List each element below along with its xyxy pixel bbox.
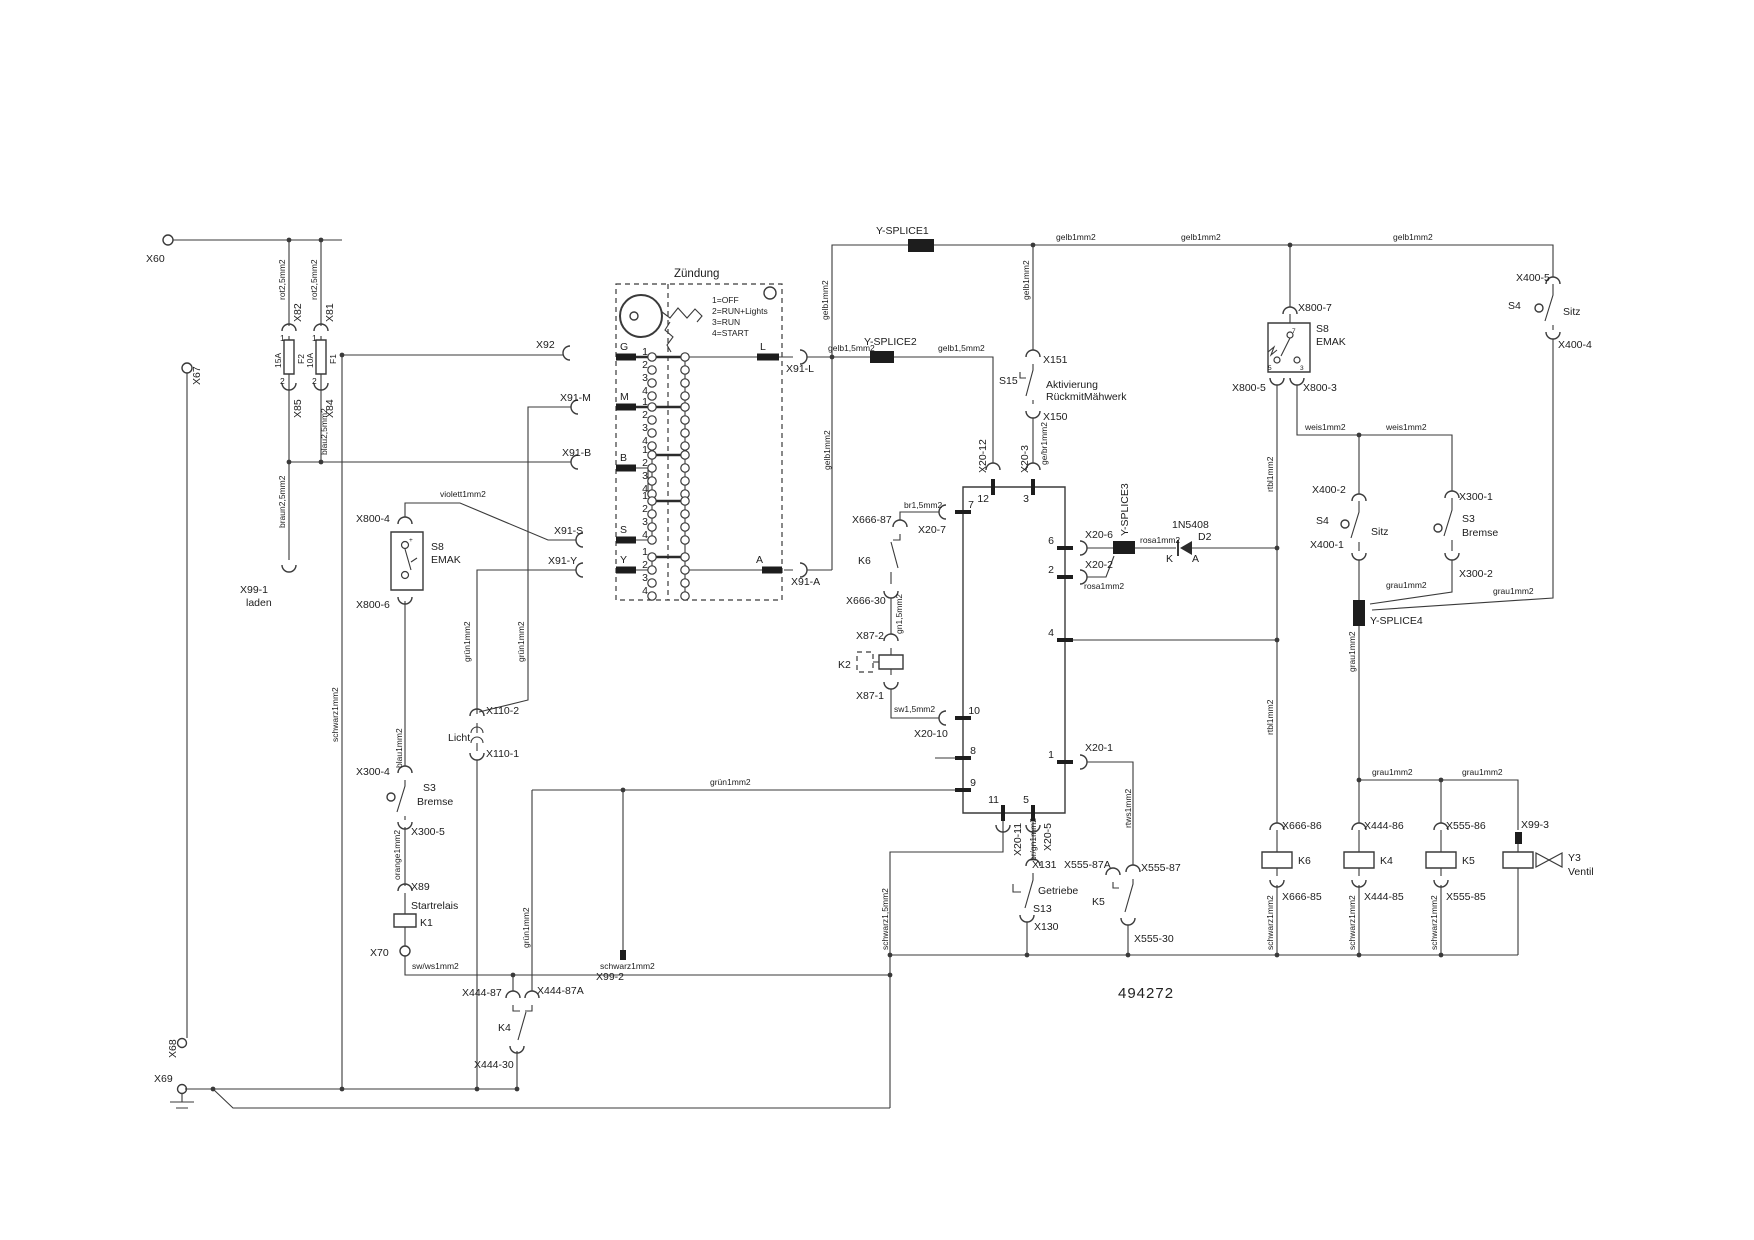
terminal-s (616, 537, 636, 544)
x150-arc (1026, 411, 1040, 418)
label-x130: X130 (1034, 921, 1059, 933)
key-linkage (665, 322, 673, 352)
label-term-l: L (760, 341, 766, 353)
label-zuendung: Zündung (674, 268, 719, 280)
svg-text:2: 2 (642, 409, 648, 421)
label-x444-87a: X444-87A (537, 985, 584, 997)
label-x555-87a: X555-87A (1064, 859, 1111, 871)
x20-10-arc (939, 711, 946, 725)
label-x800-7: X800-7 (1298, 302, 1332, 314)
label-x110-1: X110-1 (486, 748, 519, 760)
label-x87-2: X87-2 (856, 630, 884, 642)
wire-label-weis-a: weis1mm2 (1304, 422, 1346, 432)
label-x60: X60 (146, 253, 165, 265)
label-emak-right: EMAK (1316, 336, 1346, 348)
label-x555-87: X555-87 (1141, 862, 1181, 874)
x300-1-arc (1445, 491, 1459, 498)
label-x91-a: X91-A (791, 576, 820, 588)
svg-text:3: 3 (642, 470, 648, 482)
wire-label-rot25-a: rot2,5mm2 (277, 259, 287, 300)
valve-y3 (1503, 852, 1562, 868)
wire-label-rtbl-b: rtbl1mm2 (1265, 699, 1275, 735)
label-x87-1: X87-1 (856, 690, 884, 702)
x110-1-arc (470, 753, 484, 760)
svg-text:11: 11 (988, 794, 999, 806)
svg-text:1: 1 (642, 490, 648, 502)
terminal-m (616, 404, 636, 411)
wire-k5-contact (1113, 879, 1133, 955)
x20-1-arc (1080, 755, 1087, 769)
svg-text:2: 2 (642, 457, 648, 469)
svg-text:12: 12 (977, 493, 989, 505)
x87-2-arc (884, 634, 898, 641)
svg-text:3: 3 (642, 422, 648, 434)
wires (173, 240, 1553, 1108)
switch-s15-bracket (1020, 372, 1026, 378)
wire-label-gelb-v2: gelb1mm2 (822, 430, 832, 470)
label-pin7-emak: 7 (1292, 328, 1296, 335)
label-x666-86: X666-86 (1282, 820, 1322, 832)
wire-weis-bus (1297, 385, 1452, 491)
svg-text:4: 4 (642, 585, 648, 597)
wire-label-gelb-bus1: gelb1mm2 (1056, 232, 1096, 242)
label-term-s: S (620, 524, 627, 536)
junction-dots (211, 238, 1444, 1092)
label-x555-86: X555-86 (1446, 820, 1486, 832)
ignition-switch (616, 284, 782, 600)
terminal-b (616, 465, 636, 472)
label-term-g: G (620, 341, 628, 353)
x99-1-arc (282, 565, 296, 572)
svg-text:1: 1 (642, 396, 648, 408)
label-k4: K4 (1380, 855, 1393, 867)
x151-arc (1026, 350, 1040, 357)
label-x89: X89 (411, 881, 430, 893)
label-x666-87: X666-87 (852, 514, 892, 526)
wire-s4-mid (1351, 435, 1359, 600)
label-x85: X85 (292, 399, 304, 418)
label-s15: S15 (999, 375, 1018, 387)
svg-text:1: 1 (642, 444, 648, 456)
label-f2-rating: 15A (273, 353, 283, 368)
wire-label-grau-d: grau1mm2 (1462, 767, 1503, 777)
label-diode-k: K (1166, 553, 1173, 565)
terminal-x60 (163, 235, 173, 245)
svg-text:2: 2 (1048, 564, 1054, 576)
label-x91-s: X91-S (554, 525, 583, 537)
x400-4-arc (1546, 332, 1560, 339)
terminal-x99-3-end (1515, 832, 1522, 844)
label-x800-4: X800-4 (356, 513, 390, 525)
label-x82: X82 (292, 303, 304, 322)
label-f1-rating: 10A (305, 353, 315, 368)
svg-text:4: 4 (642, 529, 648, 541)
label-x666-85: X666-85 (1282, 891, 1322, 903)
label-f1: F1 (328, 354, 338, 364)
label-f2-pin2: 2 (280, 376, 285, 386)
wire-label-gruen-c: grün1mm2 (521, 907, 531, 948)
label-x400-5: X400-5 (1516, 272, 1550, 284)
label-x20-11: X20-11 (1012, 823, 1024, 856)
wire-label-violett: violett1mm2 (440, 489, 486, 499)
label-x800-6: X800-6 (356, 599, 390, 611)
label-x20-6: X20-6 (1085, 529, 1113, 541)
y-splice3 (1113, 541, 1135, 554)
label-x300-5: X300-5 (411, 826, 445, 838)
label-key-pos2: 2=RUN+Lights (712, 306, 768, 316)
x800-7-arc (1283, 307, 1297, 314)
label-s3-mid: S3 (1462, 513, 1475, 525)
switch-s3-left-actuator (387, 793, 395, 801)
x555-87-arc (1126, 865, 1140, 872)
svg-text:2: 2 (642, 503, 648, 515)
x666-87-arc (893, 520, 907, 527)
label-licht: Licht (448, 732, 470, 744)
x400-1-arc (1352, 553, 1366, 560)
wire-label-gruen-b: grün1mm2 (516, 621, 526, 662)
label-x555-30: X555-30 (1134, 933, 1174, 945)
wire-label-gelb-v3: gelb1mm2 (1021, 260, 1031, 300)
wire-label-gelb15-b: gelb1,5mm2 (938, 343, 985, 353)
terminal-y (616, 567, 636, 574)
wire-label-orange: orange1mm2 (392, 830, 402, 880)
label-x151: X151 (1043, 354, 1068, 366)
wire-label-schwarz-k5: schwarz1mm2 (1429, 895, 1439, 950)
wire-label-gruen-a: grün1mm2 (462, 621, 472, 662)
wire-pin11-ground (890, 821, 1003, 1108)
label-k5: K5 (1462, 855, 1475, 867)
label-k6-contact: K6 (858, 555, 871, 567)
label-s8-right: S8 (1316, 323, 1329, 335)
label-k6: K6 (1298, 855, 1311, 867)
svg-text:3: 3 (1023, 493, 1029, 505)
relay-k1-coil (394, 914, 416, 927)
relay-k6-coil (1262, 852, 1292, 868)
wire-label-brgn: br/gn1mm2 (1028, 818, 1038, 861)
wire-label-gruen-bus: grün1mm2 (710, 777, 751, 787)
wire-label-blau1: blau1mm2 (394, 728, 404, 768)
label-x20-3: X20-3 (1019, 445, 1031, 473)
label-f1-pin2: 2 (312, 376, 317, 386)
x87-1-arc (884, 682, 898, 689)
wire-label-schwarz-k6: schwarz1mm2 (1265, 895, 1275, 950)
label-term-y: Y (620, 554, 627, 566)
label-s3-left: S3 (423, 782, 436, 794)
label-f2-pin1: 1 (280, 333, 285, 343)
svg-text:1: 1 (642, 346, 648, 358)
label-startrelais: Startrelais (411, 900, 458, 912)
relay-k2 (857, 652, 903, 672)
label-key-pos3: 3=RUN (712, 317, 740, 327)
svg-text:2: 2 (642, 359, 648, 371)
label-k5-contact: K5 (1092, 896, 1105, 908)
wire-label-schwarz15: schwarz1,5mm2 (880, 888, 890, 950)
label-key-pos4: 4=START (712, 328, 749, 338)
wire-label-braun25: braun2,5mm2 (277, 475, 287, 528)
terminal-a (762, 567, 782, 574)
label-rueckmit: RückmitMähwerk (1046, 391, 1127, 403)
svg-text:1: 1 (642, 546, 648, 558)
key-hole (630, 312, 638, 320)
label-y-splice3: Y-SPLICE3 (1119, 483, 1131, 536)
x444-87-arc (506, 991, 520, 998)
relay-k5-coil (1426, 852, 1456, 868)
label-sitz-top: Sitz (1563, 306, 1581, 318)
wire-label-schwarz-k4: schwarz1mm2 (1347, 895, 1357, 950)
svg-text:4: 4 (1048, 627, 1054, 639)
wire-label-gebr: ge/br1mm2 (1039, 422, 1049, 465)
label-x70: X70 (370, 947, 389, 959)
connector-arcs (282, 277, 1560, 1053)
label-x131: X131 (1032, 859, 1057, 871)
switch-s3-mid-actuator (1434, 524, 1442, 532)
wire-label-grau-v: grau1mm2 (1347, 631, 1357, 672)
document-number: 494272 (1118, 985, 1174, 1002)
svg-text:3: 3 (642, 372, 648, 384)
label-emak-left: EMAK (431, 554, 461, 566)
screw-icon (764, 287, 776, 299)
label-x20-10: X20-10 (914, 728, 948, 740)
switch-s8-emak-right (1268, 323, 1310, 372)
svg-text:1: 1 (1048, 749, 1054, 761)
switch-s8-emak-left (391, 532, 423, 590)
y-splice4 (1353, 600, 1365, 626)
svg-text:8: 8 (970, 745, 976, 757)
x130-arc (1020, 915, 1034, 922)
label-plus: + (409, 537, 413, 544)
wire-ground-bus (185, 1089, 890, 1108)
wire-label-blau25: blau2,5mm2 (319, 408, 329, 455)
x555-30-arc (1121, 918, 1135, 925)
svg-text:2: 2 (642, 559, 648, 571)
label-x20-5: X20-5 (1042, 823, 1054, 851)
ignition-contact-numbers: 1234 1234 1234 1234 1234 (642, 346, 648, 597)
wire-label-br15: br1,5mm2 (904, 500, 943, 510)
label-x20-7: X20-7 (918, 524, 946, 536)
label-y-splice1: Y-SPLICE1 (876, 225, 929, 237)
label-x444-85: X444-85 (1364, 891, 1404, 903)
wire-label-gelb-bus2: gelb1mm2 (1181, 232, 1221, 242)
label-x400-4: X400-4 (1558, 339, 1592, 351)
label-x300-1: X300-1 (1459, 491, 1493, 503)
label-x555-85: X555-85 (1446, 891, 1486, 903)
wiring-diagram-page: X60 X67 X68 X69 X70 rot2,5mm2 rot2,5mm2 … (0, 0, 1754, 1240)
wire-bremse-start-column (397, 780, 890, 975)
x800-4-arc (398, 517, 412, 524)
terminal-x99-2-end (620, 950, 626, 960)
relay-k4-coil (1344, 852, 1374, 868)
label-y-splice4: Y-SPLICE4 (1370, 615, 1423, 627)
wire-label-rtws: rtws1mm2 (1123, 789, 1133, 828)
wire-label-gelb-bus3: gelb1mm2 (1393, 232, 1433, 242)
label-x300-2: X300-2 (1459, 568, 1493, 580)
svg-text:3: 3 (642, 516, 648, 528)
x800-3-arc (1290, 378, 1304, 385)
label-x92: X92 (536, 339, 555, 351)
label-x91-m: X91-M (560, 392, 591, 404)
label-k1: K1 (420, 917, 433, 929)
label-x444-87: X444-87 (462, 987, 502, 999)
x91l-arc (800, 350, 807, 364)
switch-s4-top-actuator (1535, 304, 1543, 312)
wire-label-grau-c: grau1mm2 (1372, 767, 1413, 777)
svg-text:5: 5 (1023, 794, 1029, 806)
label-x800-3: X800-3 (1303, 382, 1337, 394)
terminal-l (757, 354, 779, 361)
wiring-diagram: X60 X67 X68 X69 X70 rot2,5mm2 rot2,5mm2 … (0, 0, 1754, 1240)
label-x67: X67 (191, 366, 203, 385)
label-aktivierung: Aktivierung (1046, 379, 1098, 391)
wire-label-gelb-v1: gelb1mm2 (820, 280, 830, 320)
svg-text:3: 3 (642, 572, 648, 584)
labels: X60 X67 X68 X69 X70 rot2,5mm2 rot2,5mm2 … (146, 225, 1594, 1085)
label-term-b: B (620, 452, 627, 464)
svg-text:9: 9 (970, 777, 976, 789)
wire-x400-4-column (1372, 284, 1553, 610)
label-x91-b: X91-B (562, 447, 591, 459)
wire-label-weis-b: weis1mm2 (1385, 422, 1427, 432)
key-icon (620, 295, 662, 337)
wire-grau-bus (1359, 626, 1518, 830)
label-f1-pin1: 1 (312, 333, 317, 343)
x20-6-arc (1080, 541, 1087, 555)
wire-x91y-licht (477, 570, 576, 714)
terminal-g (616, 354, 636, 361)
x400-2-arc (1352, 494, 1366, 501)
label-x400-2: X400-2 (1312, 484, 1346, 496)
x800-5-arc (1270, 378, 1284, 385)
y-splice1 (908, 239, 934, 252)
label-x300-4: X300-4 (356, 766, 390, 778)
label-x444-30: X444-30 (474, 1059, 514, 1071)
label-bremse-left: Bremse (417, 796, 453, 808)
label-x99-2: X99-2 (596, 971, 624, 983)
wire-label-schwarz-bottom: schwarz1mm2 (600, 961, 655, 971)
wire-label-grau-b: grau1mm2 (1493, 586, 1534, 596)
label-s4-top: S4 (1508, 300, 1521, 312)
fuse-f2 (284, 340, 294, 374)
label-x91-l: X91-L (786, 363, 814, 375)
label-x800-5: X800-5 (1232, 382, 1266, 394)
label-pin5-emak: 5 (1268, 365, 1272, 372)
wire-label-rosa-b: rosa1mm2 (1084, 581, 1124, 591)
label-term-m: M (620, 391, 629, 403)
wire-violett (405, 503, 576, 540)
label-y3: Y3 (1568, 852, 1581, 864)
label-bremse-mid: Bremse (1462, 527, 1498, 539)
x91a-arc (800, 563, 807, 577)
label-x91-y: X91-Y (548, 555, 577, 567)
wire-label-rosa-a: rosa1mm2 (1140, 535, 1180, 545)
x92-arc (563, 346, 570, 360)
label-key-pos1: 1=OFF (712, 295, 739, 305)
label-term-a: A (756, 554, 763, 566)
label-x400-1: X400-1 (1310, 539, 1344, 551)
label-s13: S13 (1033, 903, 1052, 915)
x20-pin-numbers: 123 710 89 62 41 115 (968, 493, 1054, 806)
label-x110-2: X110-2 (486, 705, 519, 717)
wire-label-rot25-b: rot2,5mm2 (309, 259, 319, 300)
wire-label-sw15: sw1,5mm2 (894, 704, 935, 714)
label-x68: X68 (167, 1039, 179, 1058)
label-x81: X81 (324, 303, 336, 322)
fuse-f1 (316, 340, 326, 374)
wire-label-swws: sw/ws1mm2 (412, 961, 459, 971)
label-sitz-mid: Sitz (1371, 526, 1389, 538)
label-x99-3: X99-3 (1521, 819, 1549, 831)
wire-label-gelb15-a: gelb1,5mm2 (828, 343, 875, 353)
svg-text:10: 10 (968, 705, 980, 717)
wire-label-gn15: gn1,5mm2 (894, 594, 904, 634)
label-k2: K2 (838, 659, 851, 671)
label-x20-1: X20-1 (1085, 742, 1113, 754)
label-ventil: Ventil (1568, 866, 1594, 878)
label-diode-a: A (1192, 553, 1199, 565)
label-x666-30: X666-30 (846, 595, 886, 607)
label-x20-12: X20-12 (977, 439, 989, 473)
label-x444-86: X444-86 (1364, 820, 1404, 832)
wire-label-schwarz-left: schwarz1mm2 (330, 687, 340, 742)
label-k4-contact: K4 (498, 1022, 511, 1034)
x300-2-arc (1445, 553, 1459, 560)
switch-s4-mid-actuator (1341, 520, 1349, 528)
label-d2: D2 (1198, 531, 1212, 543)
label-s8-left: S8 (431, 541, 444, 553)
label-s4-mid: S4 (1316, 515, 1329, 527)
label-1n5408: 1N5408 (1172, 519, 1209, 531)
svg-text:7: 7 (968, 499, 974, 511)
wire-gruen-bus (532, 790, 955, 991)
label-x99-1: X99-1 (240, 584, 268, 596)
wire-label-rtbl-a: rtbl1mm2 (1265, 456, 1275, 492)
label-pin3-emak: 3 (1300, 365, 1304, 372)
label-laden: laden (246, 597, 272, 609)
label-x69: X69 (154, 1073, 173, 1085)
svg-text:6: 6 (1048, 535, 1054, 547)
ground-symbol (170, 1094, 194, 1108)
wire-label-grau-a: grau1mm2 (1386, 580, 1427, 590)
terminal-x70 (400, 946, 410, 956)
x20-connector-block (935, 479, 1073, 821)
label-x20-2: X20-2 (1085, 559, 1113, 571)
label-getriebe: Getriebe (1038, 885, 1078, 897)
label-x150: X150 (1043, 411, 1068, 423)
